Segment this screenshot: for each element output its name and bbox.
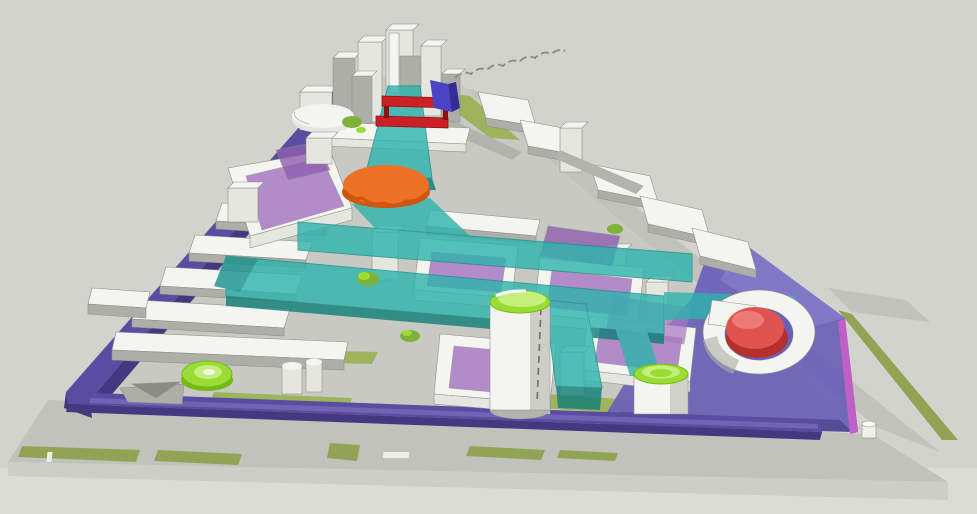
- building-block: [306, 359, 322, 393]
- model-canvas: [0, 0, 977, 514]
- masterplan-rendering: [0, 0, 977, 514]
- horseshoe-building: [703, 290, 815, 374]
- indigo-slab: [430, 80, 460, 112]
- building-block: [282, 362, 302, 394]
- orange-dome: [342, 165, 430, 208]
- building-block: [88, 288, 150, 318]
- lime-round-pavilion: [181, 361, 233, 391]
- lime-cylinder-pavilion: [634, 364, 688, 414]
- road-kiosk-cylinder: [862, 421, 876, 438]
- cylinder-tower: [490, 291, 550, 419]
